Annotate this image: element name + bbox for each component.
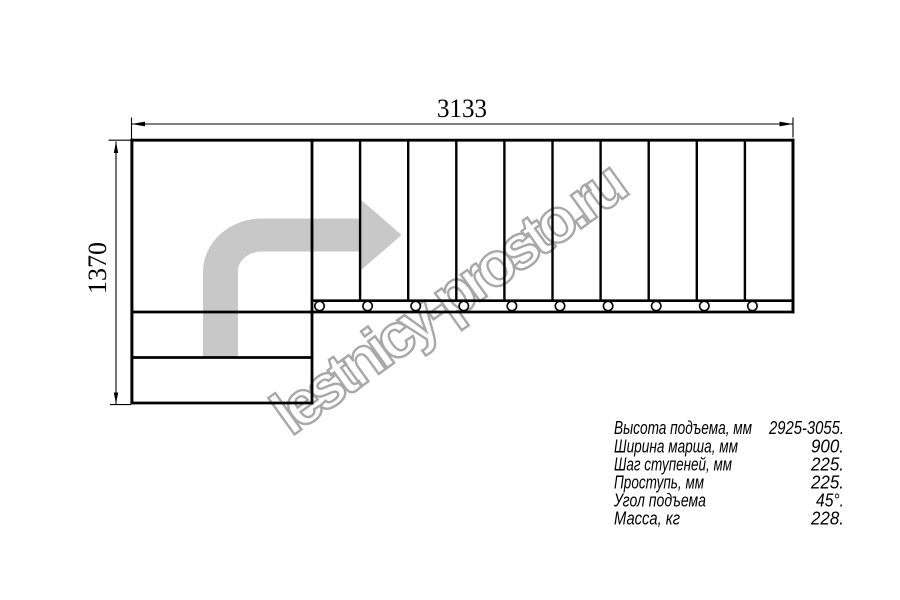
svg-text:228.: 228.	[810, 507, 844, 528]
svg-text:Масса, кг: Масса, кг	[614, 507, 680, 528]
svg-text:lestnicy-prosto.ru: lestnicy-prosto.ru	[259, 147, 640, 448]
svg-text:1370: 1370	[83, 242, 112, 294]
svg-text:3133: 3133	[437, 94, 487, 123]
